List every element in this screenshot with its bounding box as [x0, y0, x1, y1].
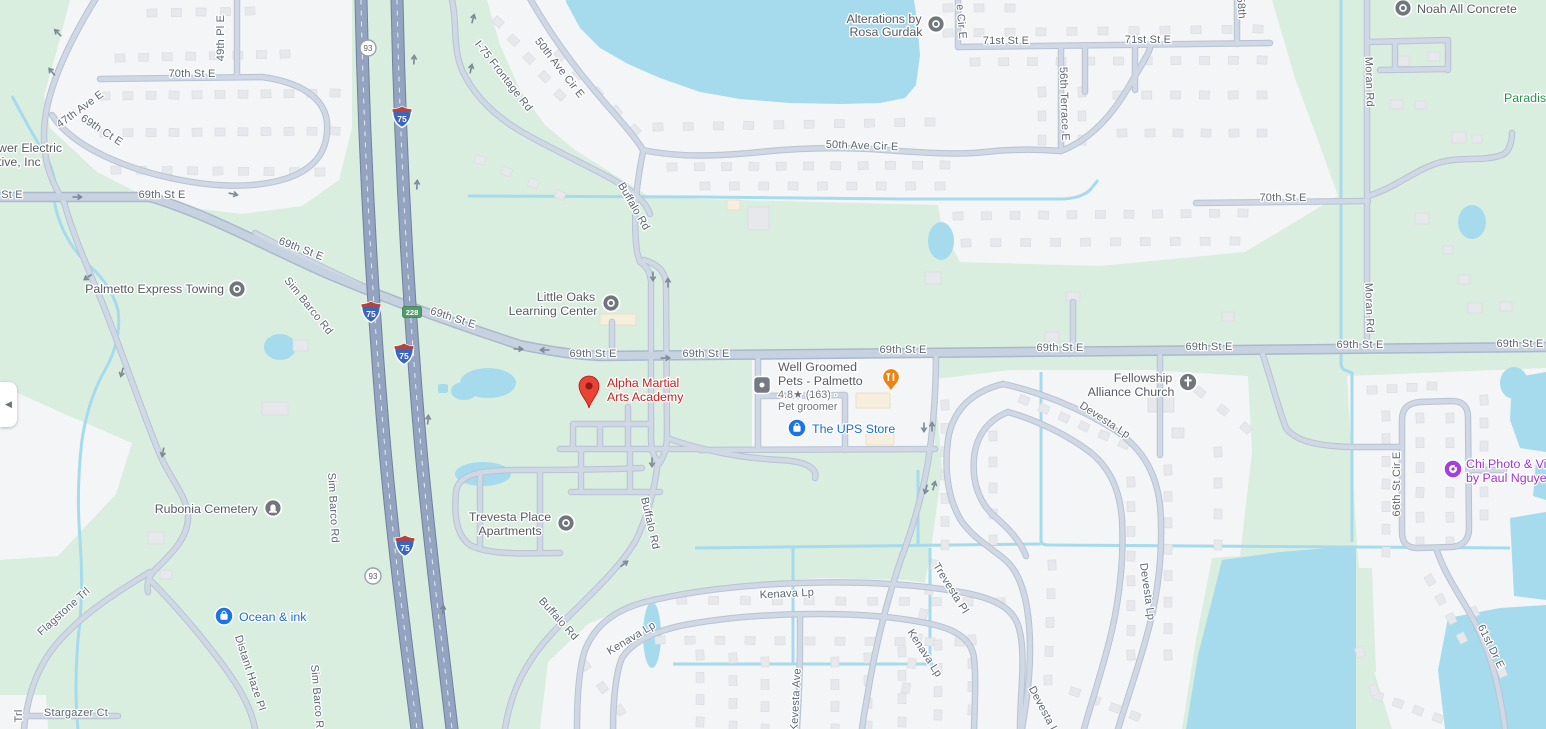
poi-label[interactable]: Rosa Gurdak [849, 25, 923, 39]
road-label: 50th Ave Cir E [825, 139, 898, 154]
svg-text:93: 93 [364, 44, 373, 53]
poi-label[interactable]: Apartments [478, 524, 541, 538]
poi-label[interactable]: Noah All Concrete [1417, 2, 1517, 16]
map-canvas[interactable]: 70th St E49th Pl E47th Ave E69th Ct ESt … [0, 0, 1546, 729]
poi-label[interactable]: The UPS Store [812, 422, 895, 436]
svg-text:75: 75 [400, 543, 410, 553]
svg-text:75: 75 [366, 309, 376, 319]
store-bag-icon[interactable] [788, 419, 806, 437]
route-93-shield: 93 [365, 568, 381, 584]
generic-poi-icon[interactable] [1395, 0, 1412, 17]
poi-label[interactable]: Paradise [1504, 91, 1546, 105]
poi-label[interactable]: Alterations by [846, 12, 922, 26]
generic-poi-icon[interactable] [928, 16, 945, 33]
cemetery-icon[interactable] [265, 500, 282, 517]
poi-label[interactable]: Palmetto Express Towing [85, 282, 224, 296]
road-label: 69th St E [1336, 339, 1383, 351]
road-label: 69th St E [1496, 338, 1543, 350]
route-93-shield: 93 [360, 40, 376, 56]
poi-label[interactable]: Learning Center [509, 304, 598, 318]
poi-label[interactable]: Alliance Church [1088, 385, 1175, 399]
poi-label[interactable]: Ocean & ink [239, 610, 307, 624]
road-label: St E [1, 189, 23, 201]
svg-text:75: 75 [397, 114, 407, 124]
svg-text:228: 228 [406, 308, 419, 317]
road-label: Stargazer Ct [44, 707, 108, 719]
road-label: 49th Pl E [215, 15, 227, 61]
generic-poi-icon[interactable] [558, 515, 575, 532]
photographer-icon[interactable] [1444, 460, 1462, 478]
exit-228-badge: 228 [403, 307, 422, 318]
poi-label[interactable]: Fellowship [1114, 371, 1173, 385]
poi-paradise-park-label[interactable]: Paradise [1504, 91, 1546, 105]
poi-label[interactable]: Arts Academy [607, 390, 684, 404]
road-label: 71st St E [983, 35, 1029, 47]
side-panel-collapse-button[interactable]: ◀ [0, 382, 17, 427]
road-label: Moran Rd [1362, 57, 1376, 107]
poi-label[interactable]: Trevesta Place [469, 510, 551, 524]
road-label: 71st St E [1125, 34, 1171, 46]
road-label: 69th St E [1185, 341, 1232, 353]
road-label: 58th [1234, 0, 1248, 19]
road-label: 69th St E [1036, 342, 1083, 354]
road-label: Trl [13, 709, 25, 722]
road-label: 70th St E [168, 68, 215, 80]
poi-palmetto-express-towing[interactable]: Palmetto Express Towing [85, 281, 245, 298]
poi-label[interactable]: tive, Inc [0, 155, 41, 169]
poi-label[interactable]: Pets - Palmetto [778, 374, 863, 388]
poi-label[interactable]: by Paul Nguye [1466, 471, 1546, 485]
poi-the-ups-store[interactable]: The UPS Store [788, 419, 895, 437]
road-label: 69th St E [682, 348, 729, 360]
poi-label[interactable]: Chi Photo & Vi [1466, 457, 1546, 471]
poi-label[interactable]: Rubonia Cemetery [155, 502, 259, 516]
generic-poi-icon[interactable] [229, 281, 246, 298]
road-label: 69th St E [879, 344, 926, 356]
road-label: 69th St E [138, 189, 185, 201]
poi-label[interactable]: wer Electric [0, 141, 62, 155]
store-bag-icon[interactable] [215, 607, 233, 625]
road-label: Moran Rd [1362, 283, 1376, 333]
road-label: 66th St Cir E [1391, 452, 1403, 517]
road-label: 69th St E [569, 348, 616, 360]
poi-ocean-and-ink[interactable]: Ocean & ink [215, 607, 307, 625]
poi-label[interactable]: 4.8★ (163) · [778, 389, 838, 401]
poi-label[interactable]: Pet groomer [778, 401, 838, 413]
pet-groomer-icon[interactable] [754, 377, 771, 394]
road-label: 70th St E [1259, 192, 1306, 204]
poi-label[interactable]: Well Groomed [778, 360, 857, 374]
poi-label[interactable]: Little Oaks [537, 290, 596, 304]
poi-label[interactable]: Alpha Martial [607, 376, 679, 390]
church-cross-icon[interactable] [1179, 373, 1197, 391]
generic-poi-icon[interactable] [603, 295, 620, 312]
svg-text:75: 75 [399, 351, 409, 361]
left-arrow-icon: ◀ [5, 399, 12, 410]
svg-text:93: 93 [369, 572, 378, 581]
map-svg[interactable]: 70th St E49th Pl E47th Ave E69th Ct ESt … [0, 0, 1546, 729]
